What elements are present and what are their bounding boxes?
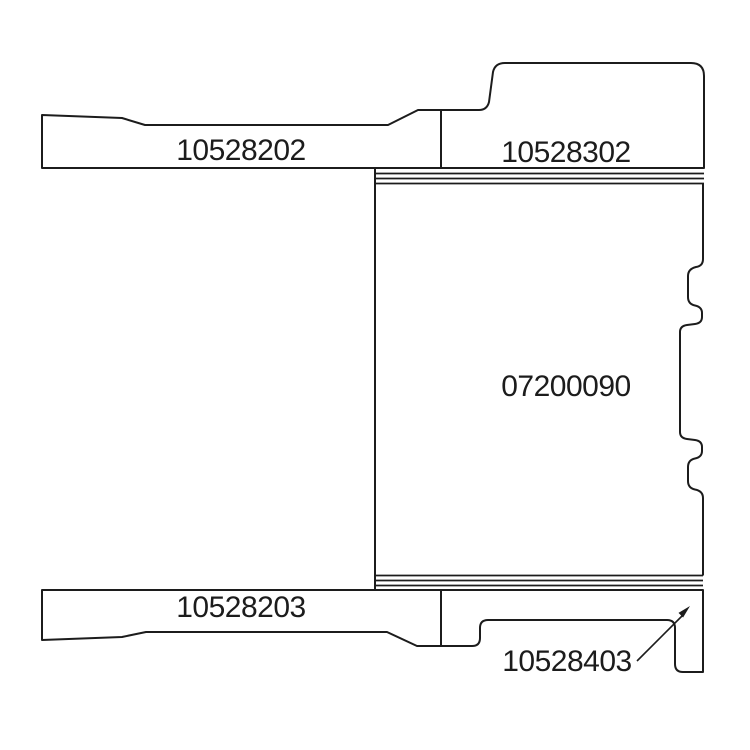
part-label-top-right: 10528302	[501, 136, 630, 169]
part-label-bottom-right: 10528403	[502, 645, 631, 678]
part-label-top-left: 10528202	[176, 134, 305, 167]
part-label-bottom-left: 10528203	[176, 591, 305, 624]
diagram-canvas: 10528202 10528302 07200090 10528203 1052…	[0, 0, 750, 750]
part-label-center: 07200090	[501, 370, 630, 403]
